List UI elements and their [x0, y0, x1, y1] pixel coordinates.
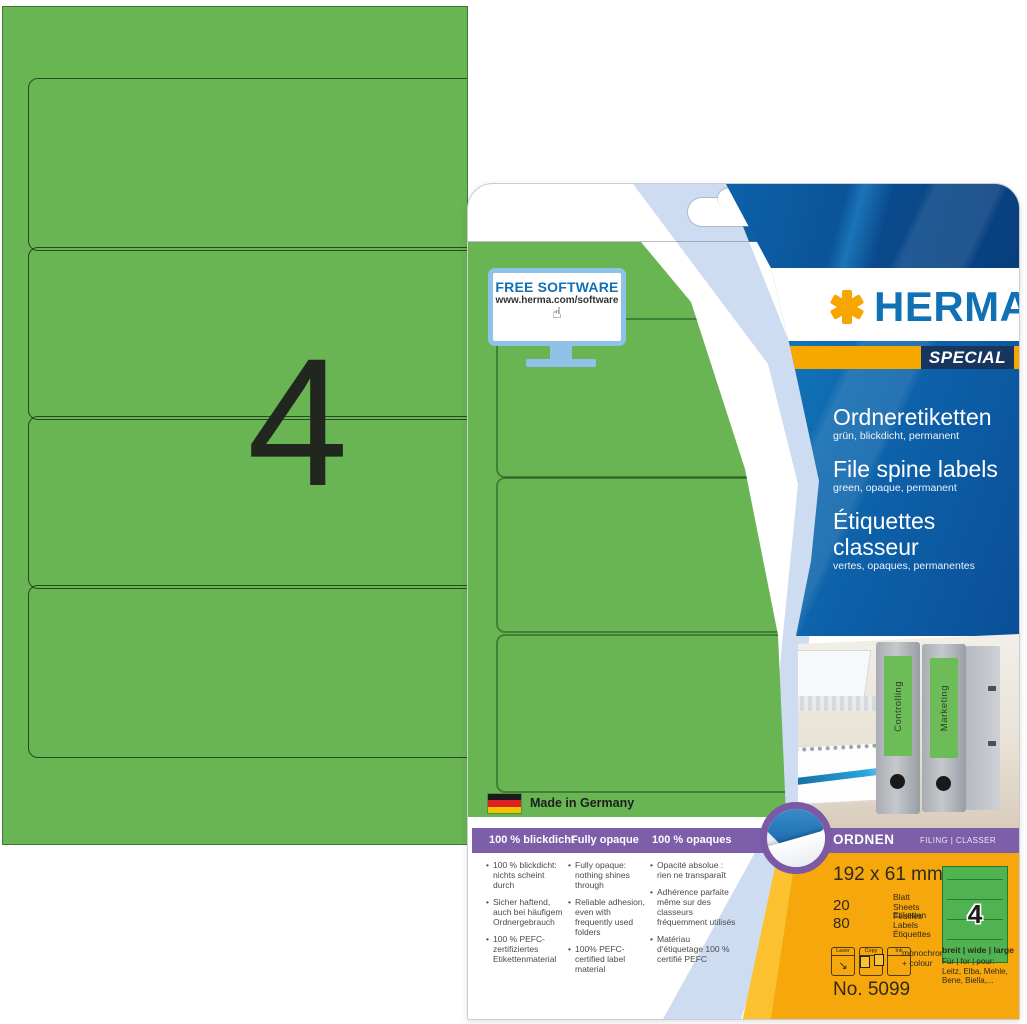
peel-label-icon [760, 802, 832, 874]
printed-label-outline [496, 477, 830, 633]
laptop-keyboard [798, 696, 878, 711]
feature-item: Reliable adhesion, even with frequently … [568, 897, 648, 937]
printer-compatibility-icons: Laser ↘ Copy Ink [831, 947, 911, 976]
special-band-end [1014, 346, 1019, 369]
folder-clip [988, 741, 996, 746]
feature-item: 100 % blickdicht: nichts scheint durch [486, 860, 564, 890]
feature-item: 100 % PEFC-zertifiziertes Etikettenmater… [486, 934, 564, 964]
free-software-title: FREE SOFTWARE [493, 279, 621, 295]
compat-line3: Bene, Biella,... [942, 976, 1008, 986]
labels-count: 80 [833, 915, 850, 932]
category-band: 100 % blickdicht Fully opaque 100 % opaq… [472, 828, 1019, 853]
special-band: SPECIAL [708, 346, 1019, 369]
folder-controlling: Controlling [876, 642, 920, 814]
features-de: 100 % blickdicht: nichts scheint durch S… [486, 860, 564, 971]
hand-cursor-icon: ☝ [493, 306, 621, 321]
product-subtitle-de: grün, blickdicht, permanent [833, 430, 1019, 443]
label-sheet: 4 [2, 6, 468, 845]
product-subtitle-en: green, opaque, permanent [833, 482, 1019, 495]
feature-item: 100% PEFC-certified label material [568, 944, 648, 974]
laser-printer-icon: Laser ↘ [831, 947, 855, 976]
herma-logo: HERMA [828, 283, 1020, 331]
sheet-count-number: 4 [247, 331, 344, 513]
labels-label-fr: Étiquettes [893, 930, 931, 940]
monitor-base [526, 359, 596, 367]
folder-marketing: Marketing [922, 644, 966, 812]
feature-band-fr: 100 % opaques [652, 834, 731, 846]
product-title-fr: Étiquettes classeur [833, 508, 1019, 560]
features-en: Fully opaque: nothing shines through Rel… [568, 860, 648, 981]
free-software-monitor: FREE SOFTWARE www.herma.com/software ☝ [488, 268, 626, 346]
spec-content: 192 x 61 mm 20 Blatt Sheets Feuilles 80 … [798, 853, 1019, 1019]
features-fr: Opacité absolue : rien ne transparaît Ad… [650, 860, 738, 971]
brand-name: HERMA [874, 283, 1020, 331]
feature-band-en: Fully opaque [571, 834, 639, 846]
product-subtitle-fr: vertes, opaques, permanentes [833, 560, 1019, 573]
made-in-label: Made in Germany [530, 796, 634, 810]
special-label: SPECIAL [921, 346, 1014, 369]
folder-clip [988, 686, 996, 691]
product-title-en: File spine labels [833, 456, 1019, 482]
mini-sheet-line [947, 879, 1003, 880]
feature-item: Adhérence parfaite même sur des classeur… [650, 887, 738, 927]
product-titles: Ordneretiketten grün, blickdicht, perman… [833, 404, 1019, 586]
feature-band-de: 100 % blickdicht [489, 834, 575, 846]
laser-icon-label: Laser [832, 948, 854, 956]
asterisk-icon [828, 287, 866, 327]
width-note: breit | wide | large [942, 945, 1014, 955]
printed-label-outline [496, 634, 830, 793]
mini-sheet-line [947, 939, 1003, 940]
category-subtitle: FILING | CLASSER [920, 836, 996, 845]
feature-item: Sicher haftend, auch bei häufigem Ordner… [486, 897, 564, 927]
german-flag-icon [488, 794, 521, 813]
sheets-count: 20 [833, 897, 850, 914]
label-outline [28, 585, 468, 758]
page: 4 FREE SOFTWARE www.herma.com/software ☝ [0, 0, 1027, 1024]
folder-back [966, 646, 1000, 810]
category-title: ORDNEN [833, 832, 895, 847]
folder-label-text: Marketing [939, 685, 950, 731]
compat-line1: Für | for | pour: [942, 957, 1008, 967]
feature-item: Matériau d'étiquetage 100 % certifié PEF… [650, 934, 738, 964]
copier-icon: Copy [859, 947, 883, 976]
feature-item: Opacité absolue : rien ne transparaît [650, 860, 738, 880]
label-outline [28, 78, 468, 251]
monitor-stand [550, 346, 572, 359]
laptop-screen [798, 650, 871, 698]
laser-icon-glyph: ↘ [838, 959, 847, 972]
article-number: No. 5099 [833, 979, 910, 1001]
folder-spine-label: Controlling [884, 656, 912, 756]
compat-line2: Leitz, Elba, Mehle, [942, 967, 1008, 977]
labels-labels: Etiketten Labels Étiquettes [893, 911, 931, 940]
application-photo: Controlling Marketing [798, 634, 1019, 829]
mini-sheet-count: 4 [943, 899, 1007, 930]
product-package: FREE SOFTWARE www.herma.com/software ☝ H… [467, 183, 1020, 1020]
label-size: 192 x 61 mm [833, 864, 943, 886]
folder-grip-hole [890, 774, 905, 789]
folder-grip-hole [936, 776, 951, 791]
product-title-de: Ordneretiketten [833, 404, 1019, 430]
folder-label-text: Controlling [893, 681, 904, 732]
feature-item: Fully opaque: nothing shines through [568, 860, 648, 890]
compatibility-note: Für | for | pour: Leitz, Elba, Mehle, Be… [942, 957, 1008, 986]
folder-spine-label: Marketing [930, 658, 958, 758]
